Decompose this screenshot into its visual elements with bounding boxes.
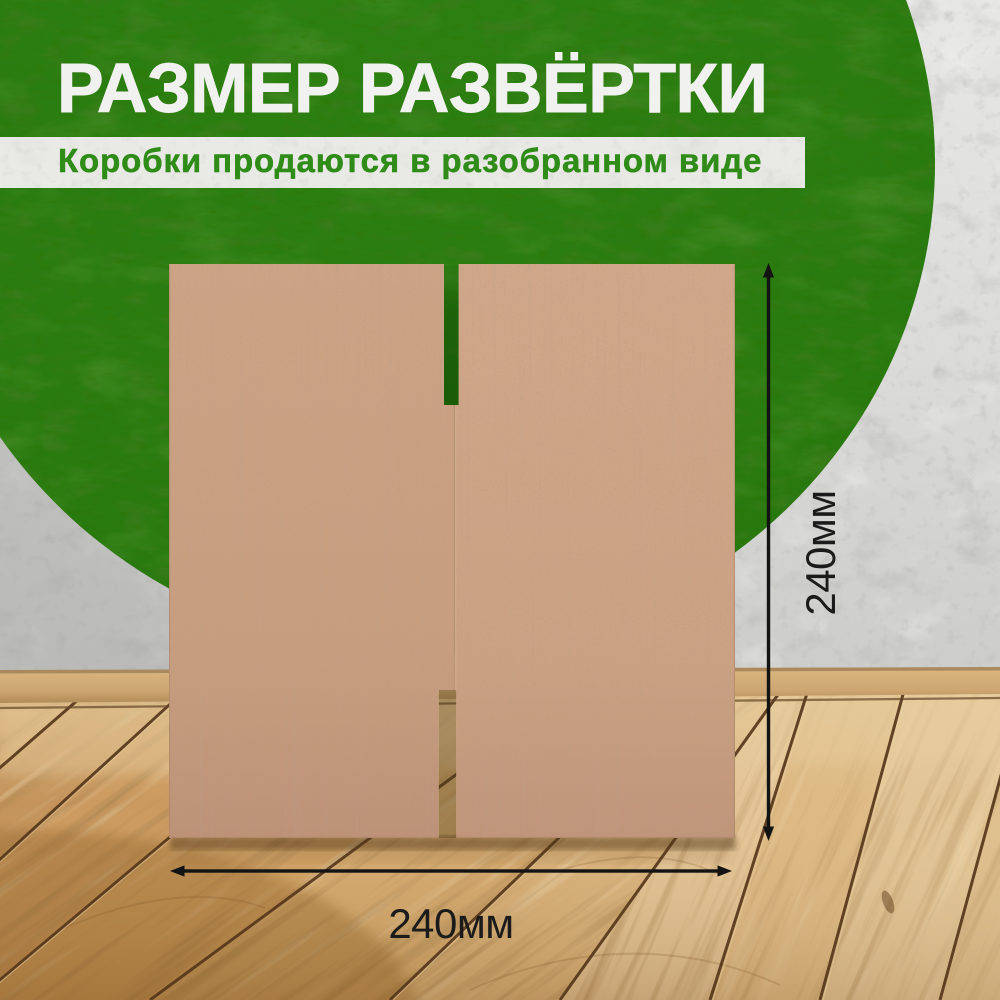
svg-text:240мм: 240мм	[388, 900, 513, 947]
svg-text:Коробки продаются в разобранно: Коробки продаются в разобранном виде	[58, 142, 762, 179]
svg-text:РАЗМЕР РАЗВЁРТКИ: РАЗМЕР РАЗВЁРТКИ	[57, 49, 767, 127]
svg-text:240мм: 240мм	[797, 490, 844, 615]
